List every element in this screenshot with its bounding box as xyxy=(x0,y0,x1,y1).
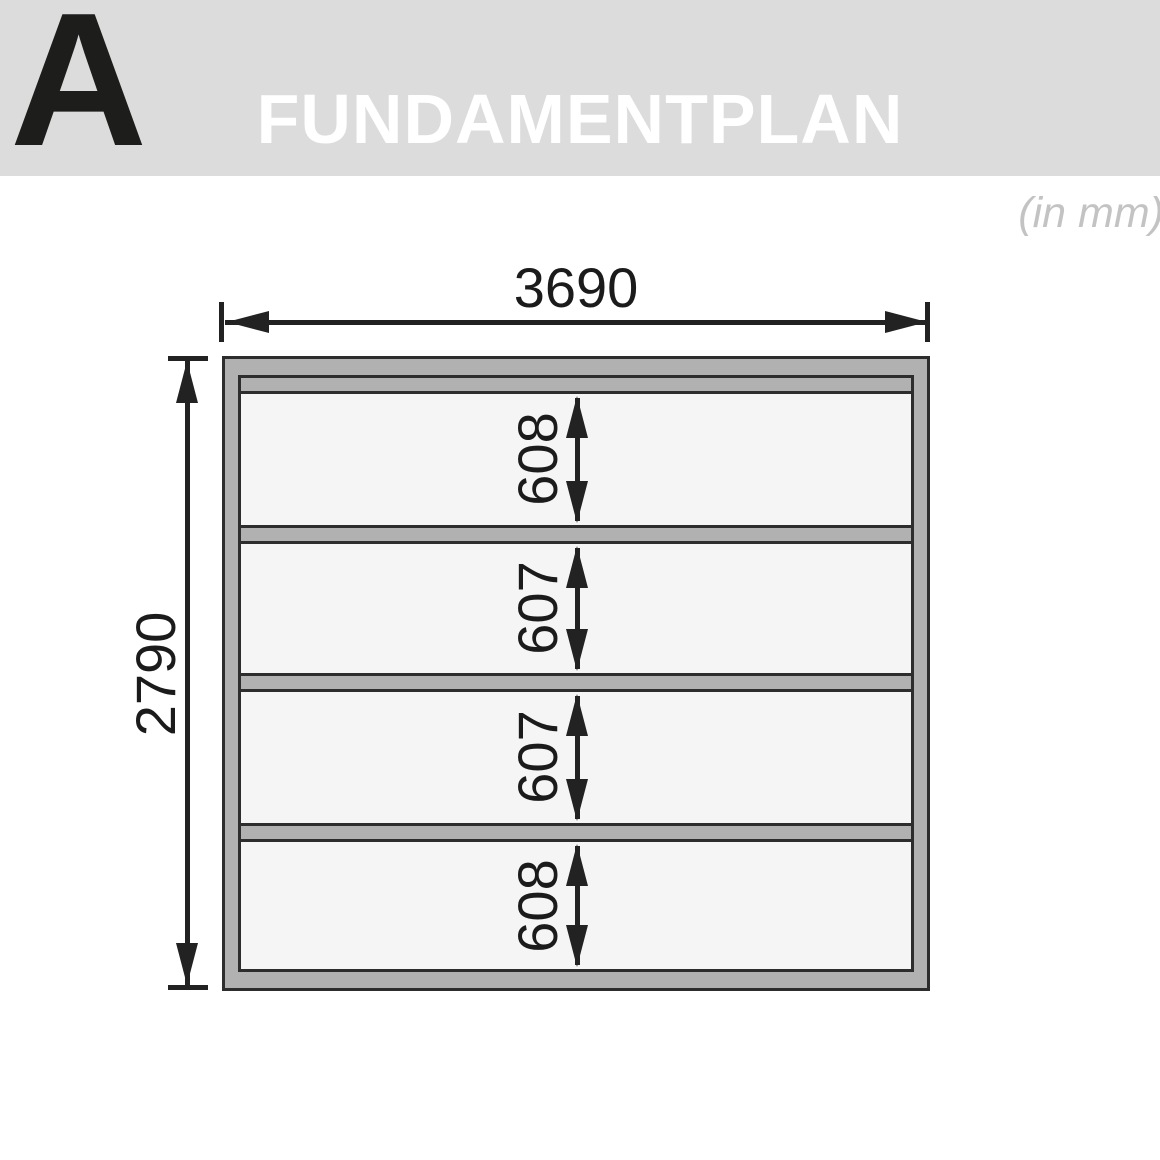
arrow-up-icon xyxy=(566,694,588,736)
arrow-down-icon xyxy=(176,943,198,985)
arrow-down-icon xyxy=(566,925,588,967)
arrow-up-icon xyxy=(566,396,588,438)
dimension-height-label: 2790 xyxy=(128,612,184,737)
dimension-width-line xyxy=(225,320,926,325)
dimension-height-tick-bottom xyxy=(168,985,208,990)
joist-2 xyxy=(238,525,914,544)
header-banner: A FUNDAMENTPLAN xyxy=(0,0,1160,176)
page-title: FUNDAMENTPLAN xyxy=(0,31,1160,207)
dimension-height-line xyxy=(185,360,190,987)
arrow-down-icon xyxy=(566,481,588,523)
spacing-2-label: 607 xyxy=(510,561,566,654)
spacing-3-label: 607 xyxy=(510,710,566,803)
joist-3 xyxy=(238,673,914,692)
frame-beam-bottom xyxy=(225,969,927,988)
arrow-up-icon xyxy=(176,361,198,403)
joist-1 xyxy=(238,375,914,394)
arrow-right-icon xyxy=(885,311,927,333)
spacing-4-label: 608 xyxy=(510,859,566,952)
dimension-width-label: 3690 xyxy=(222,260,930,316)
units-note: (in mm) xyxy=(1018,192,1160,235)
dimension-width-tick-left xyxy=(219,302,224,342)
arrow-down-icon xyxy=(566,629,588,671)
arrow-left-icon xyxy=(227,311,269,333)
foundation-plan-page: A FUNDAMENTPLAN (in mm) 3690 2790 608 60… xyxy=(0,0,1160,1160)
arrow-up-icon xyxy=(566,546,588,588)
arrow-up-icon xyxy=(566,844,588,886)
spacing-1-label: 608 xyxy=(510,412,566,505)
joist-4 xyxy=(238,823,914,842)
arrow-down-icon xyxy=(566,779,588,821)
